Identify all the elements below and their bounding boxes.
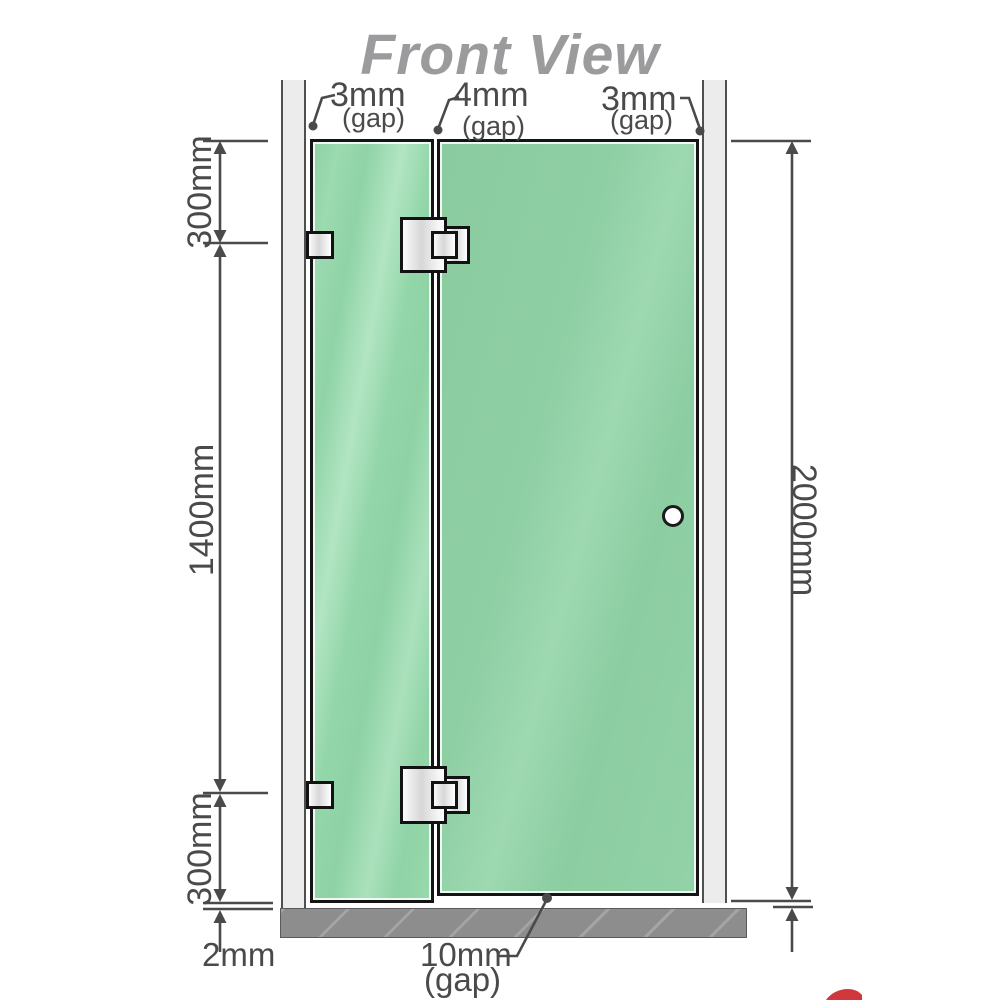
gap-middle-note: (gap) [462,113,525,140]
logo-sliver [826,989,862,1000]
dim-right-overall: 2000mm [787,464,821,596]
right-wall-post [702,80,727,903]
dim-left-top: 300mm [183,135,217,248]
floor-base [280,908,747,938]
gap-right-note: (gap) [610,107,673,134]
hinge-top-knuckle [431,231,458,259]
gap-bottom-note: (gap) [424,963,501,996]
floor-clearance-label: 2mm [202,938,275,971]
gap-left-note: (gap) [342,105,405,132]
shower-screen-front-view-diagram: Front View [0,0,1000,1000]
door-glass-panel [437,139,699,896]
dim-left-middle: 1400mm [185,444,219,576]
door-knob [662,505,684,527]
dim-left-bottom: 300mm [183,792,217,905]
wall-bracket-top [306,231,334,259]
hinge-bottom-knuckle [431,781,458,809]
wall-bracket-bottom [306,781,334,809]
gap-middle-value: 4mm [453,78,529,112]
left-wall-post [281,80,306,908]
